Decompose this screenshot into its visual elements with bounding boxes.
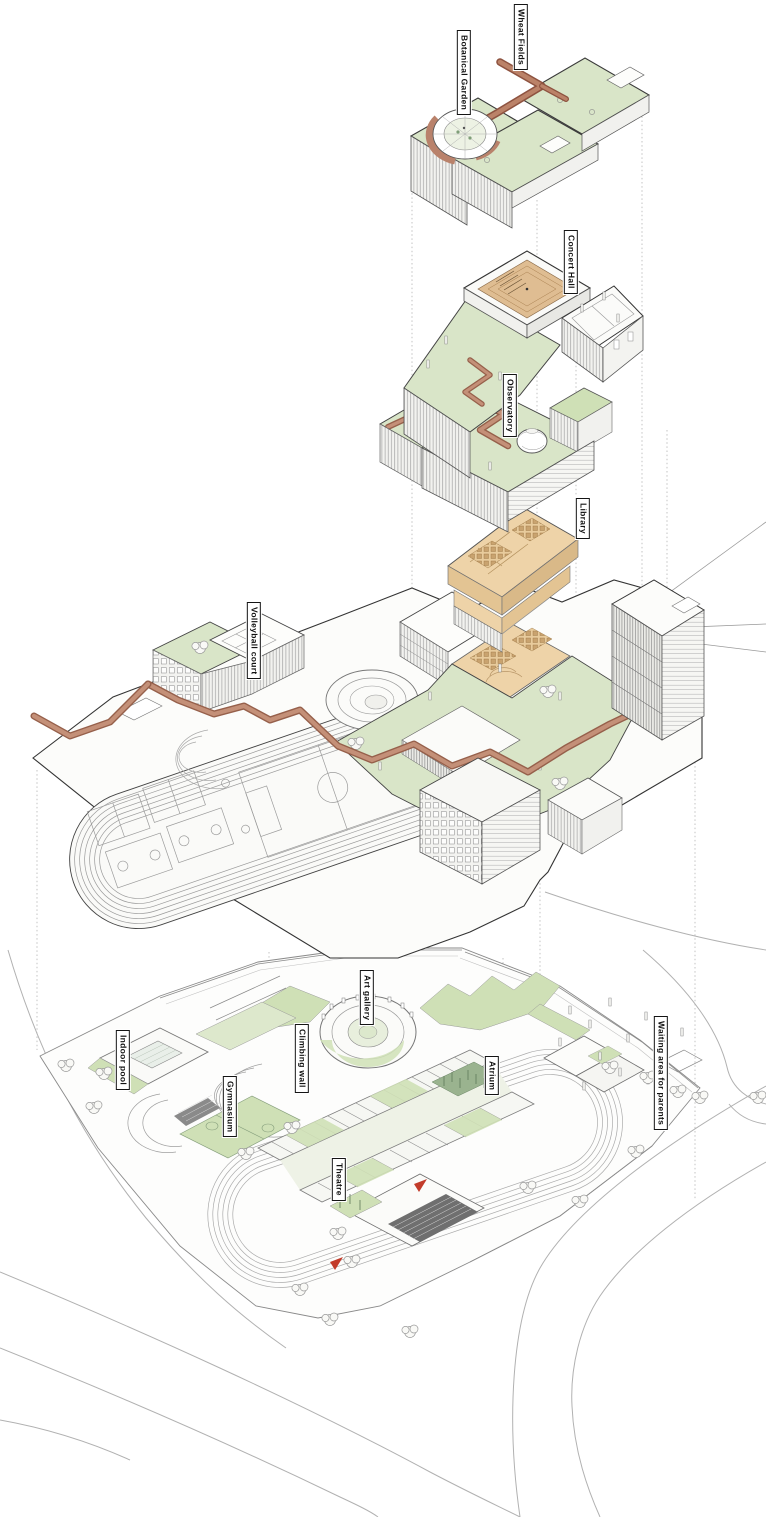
label-indoor-pool: Indoor pool xyxy=(116,1030,130,1090)
ground-level xyxy=(40,948,766,1338)
observatory-dome xyxy=(517,429,547,453)
label-botanical-garden: Botanical Garden xyxy=(457,30,471,115)
label-observatory: Observatory xyxy=(503,374,517,437)
label-climbing-wall: Climbing wall xyxy=(295,1024,309,1093)
label-volleyball-court: Volleyball court xyxy=(247,602,261,679)
label-concert-hall: Concert Hall xyxy=(564,230,578,294)
botanical-garden-dome xyxy=(429,109,498,161)
label-atrium: Atrium xyxy=(485,1056,499,1095)
axonometric-drawing xyxy=(0,0,766,1517)
label-theatre: Theatre xyxy=(332,1158,346,1201)
label-gymnasium: Gymnasium xyxy=(223,1076,237,1137)
campus-level xyxy=(33,580,704,958)
east-tall-building xyxy=(612,580,704,740)
label-library: Library xyxy=(576,498,590,539)
exploded-axonometric-campus-diagram: Wheat Fields Botanical Garden Concert Ha… xyxy=(0,0,766,1517)
label-wheat-fields: Wheat Fields xyxy=(514,4,528,70)
roof-level xyxy=(411,58,649,228)
label-waiting-area: Waiting area for parents xyxy=(654,1016,668,1130)
label-art-gallery: Art gallery xyxy=(360,970,374,1025)
